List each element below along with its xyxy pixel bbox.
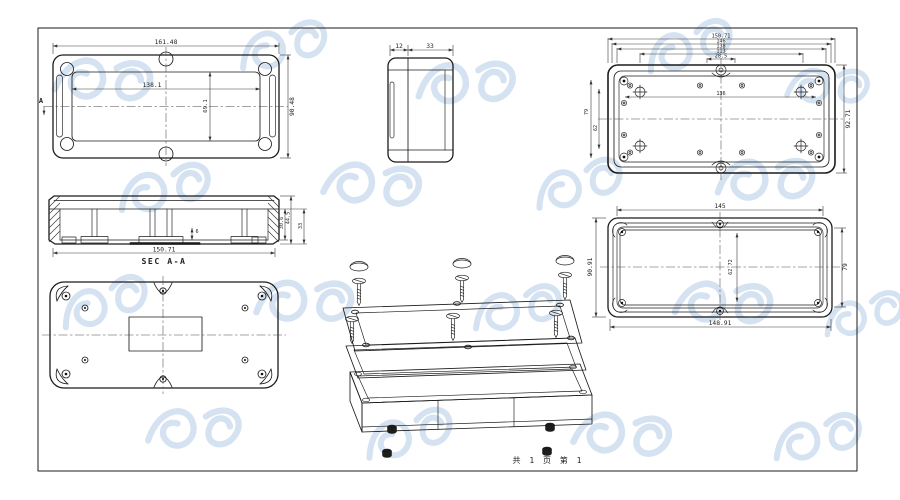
watermark — [55, 18, 900, 463]
dim-lid-inner-height: 62.72 — [728, 259, 734, 275]
lid-inside-view: 62.72 145 148.91 90.91 79 — [587, 203, 849, 331]
side-outline — [388, 58, 453, 162]
bottom-holes — [82, 305, 248, 363]
dim-base-left-outer: 79 — [584, 109, 590, 115]
exploded-lid — [343, 300, 582, 351]
dim-base-stack-5: 28.5 — [715, 54, 728, 60]
bottom-knockout — [129, 317, 202, 351]
dim-side-base: 33 — [426, 43, 434, 50]
dim-side-lid: 12 — [395, 43, 403, 50]
dim-base-left-inner: 62 — [593, 125, 599, 131]
section-marker-a: A — [39, 97, 44, 105]
dim-cover-total-width: 161.48 — [155, 39, 178, 46]
dim-section-boss: 6 — [195, 229, 198, 235]
section-ribs — [62, 209, 266, 243]
drawing-sheet: 161.48 138.1 69.1 90.48 A 12 33 — [0, 0, 900, 500]
page-footer: 共 1 页 第 1 — [513, 455, 584, 465]
dim-section-width: 150.71 — [153, 247, 176, 254]
dim-cover-total-height: 90.48 — [289, 97, 296, 116]
dim-lid-top-width: 145 — [714, 203, 726, 210]
dim-cover-inner-height: 69.1 — [203, 99, 209, 112]
dim-lid-bottom-width: 148.91 — [709, 320, 732, 327]
dim-lid-left-height: 90.91 — [587, 257, 594, 276]
section-label: SEC A-A — [141, 256, 186, 266]
dim-section-total-depth: 44.5 — [286, 212, 292, 225]
base-back-view: 136 150.71 146 138 113 28.5 92.71 79 62 — [584, 34, 852, 181]
drawing-canvas: 161.48 138.1 69.1 90.48 A 12 33 — [0, 0, 900, 500]
dim-base-inner-width: 136 — [716, 91, 725, 97]
dim-base-right-height: 92.71 — [845, 109, 852, 128]
dim-cover-inner-width: 138.1 — [143, 82, 162, 89]
dim-lid-right-height: 79 — [842, 263, 849, 271]
dim-section-base-height: 33 — [298, 223, 304, 229]
dim-section-inner-depth: 30.6 — [279, 217, 285, 230]
section-view: 6 150.71 SEC A-A 30.6 44.5 33 — [49, 196, 307, 266]
